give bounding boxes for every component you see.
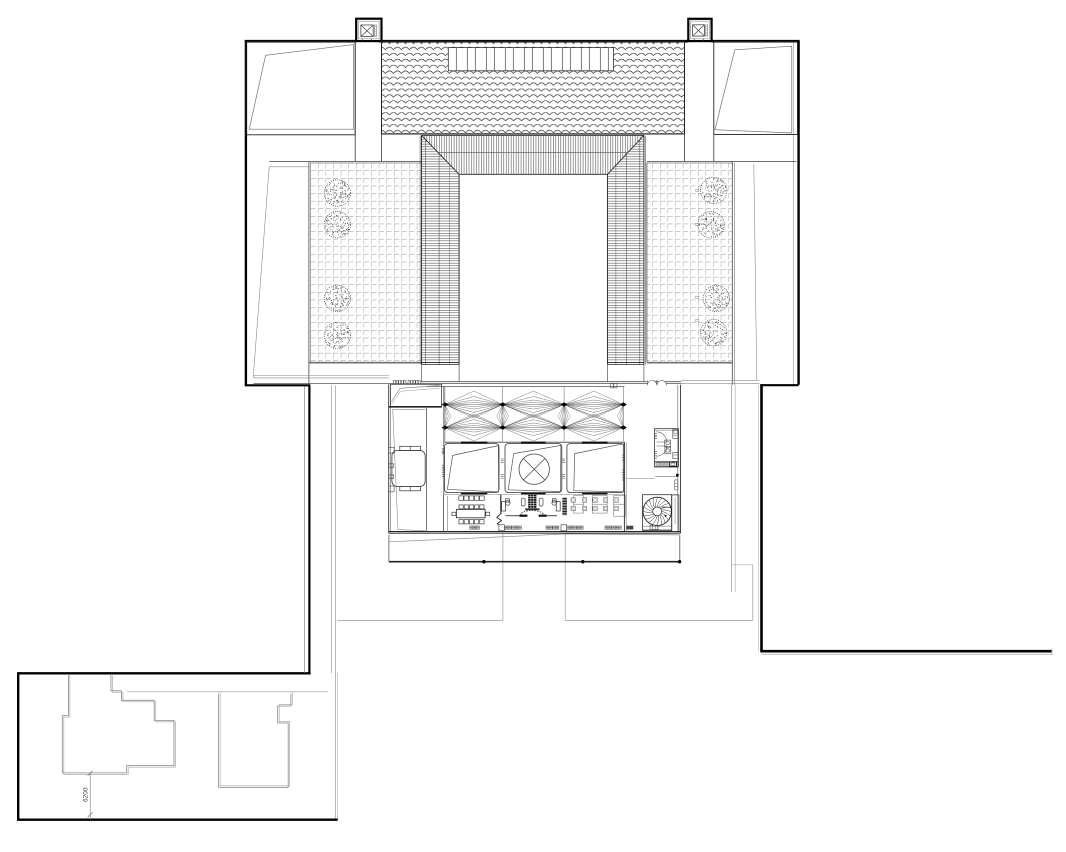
svg-text:6200: 6200: [83, 787, 90, 802]
